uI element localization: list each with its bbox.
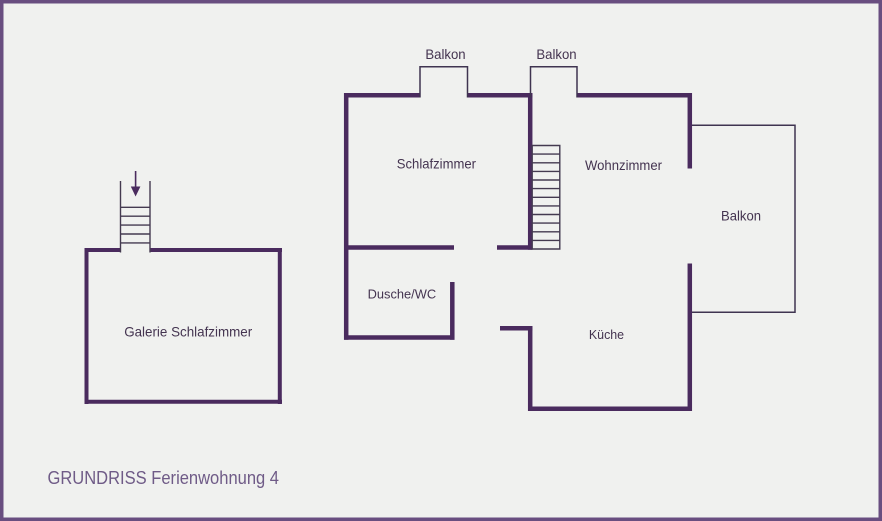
svg-text:Wohnzimmer: Wohnzimmer xyxy=(585,157,662,173)
svg-text:Galerie Schlafzimmer: Galerie Schlafzimmer xyxy=(124,324,252,340)
svg-text:Schlafzimmer: Schlafzimmer xyxy=(397,156,477,172)
svg-text:Balkon: Balkon xyxy=(425,46,465,62)
svg-text:GRUNDRISS Ferienwohnung 4: GRUNDRISS Ferienwohnung 4 xyxy=(48,467,280,488)
svg-text:Balkon: Balkon xyxy=(721,208,761,224)
svg-text:Balkon: Balkon xyxy=(536,46,576,62)
svg-text:Küche: Küche xyxy=(589,327,624,342)
svg-text:Dusche/WC: Dusche/WC xyxy=(368,287,437,302)
